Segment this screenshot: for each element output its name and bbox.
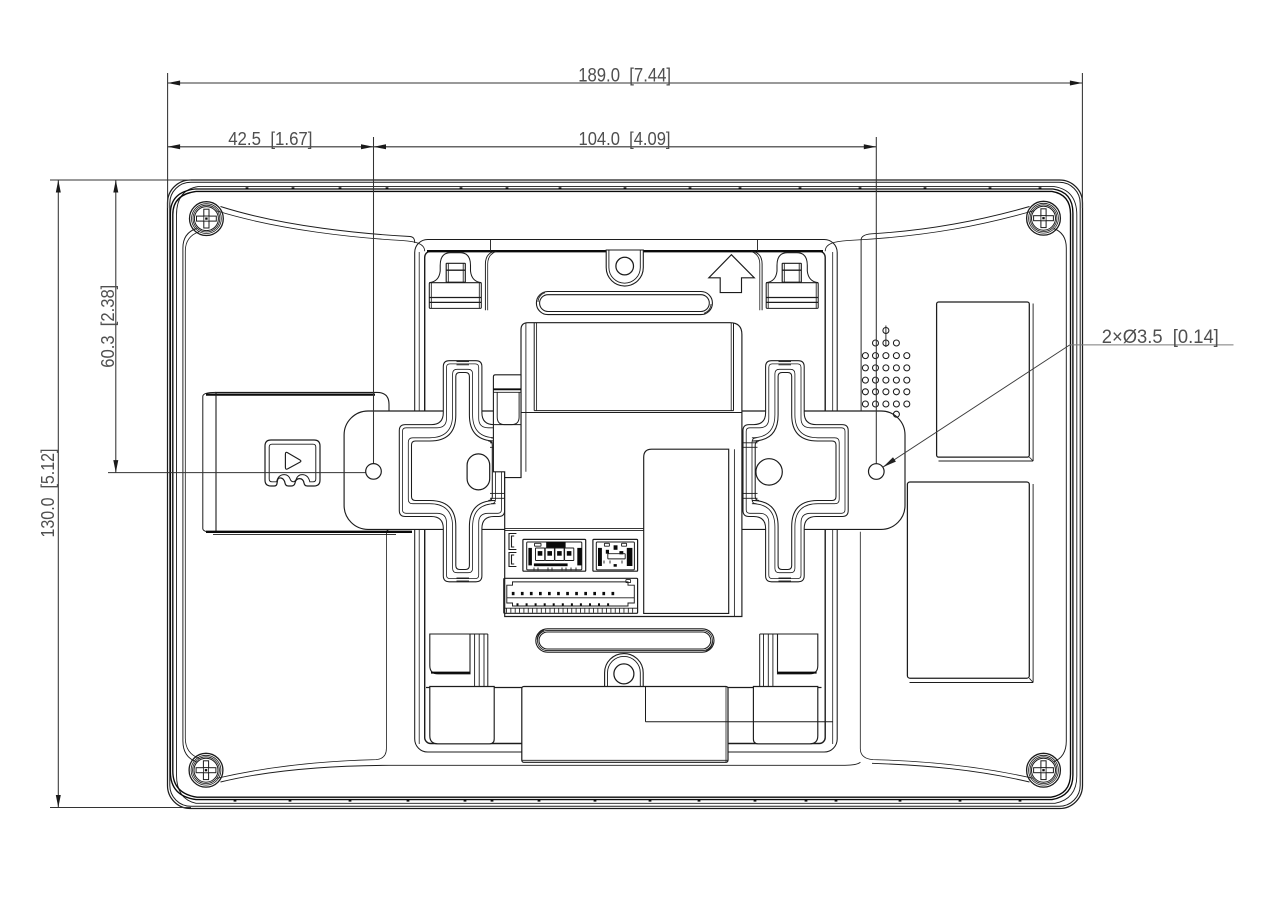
svg-text:2×Ø3.5 [0.14]: 2×Ø3.5 [0.14] <box>1102 327 1219 348</box>
svg-text:189.0 [7.44]: 189.0 [7.44] <box>578 66 671 87</box>
svg-text:60.3 [2.38]: 60.3 [2.38] <box>98 285 118 368</box>
svg-text:42.5 [1.67]: 42.5 [1.67] <box>228 129 312 149</box>
svg-text:104.0 [4.09]: 104.0 [4.09] <box>579 129 671 149</box>
svg-text:130.0 [5.12]: 130.0 [5.12] <box>38 449 58 538</box>
